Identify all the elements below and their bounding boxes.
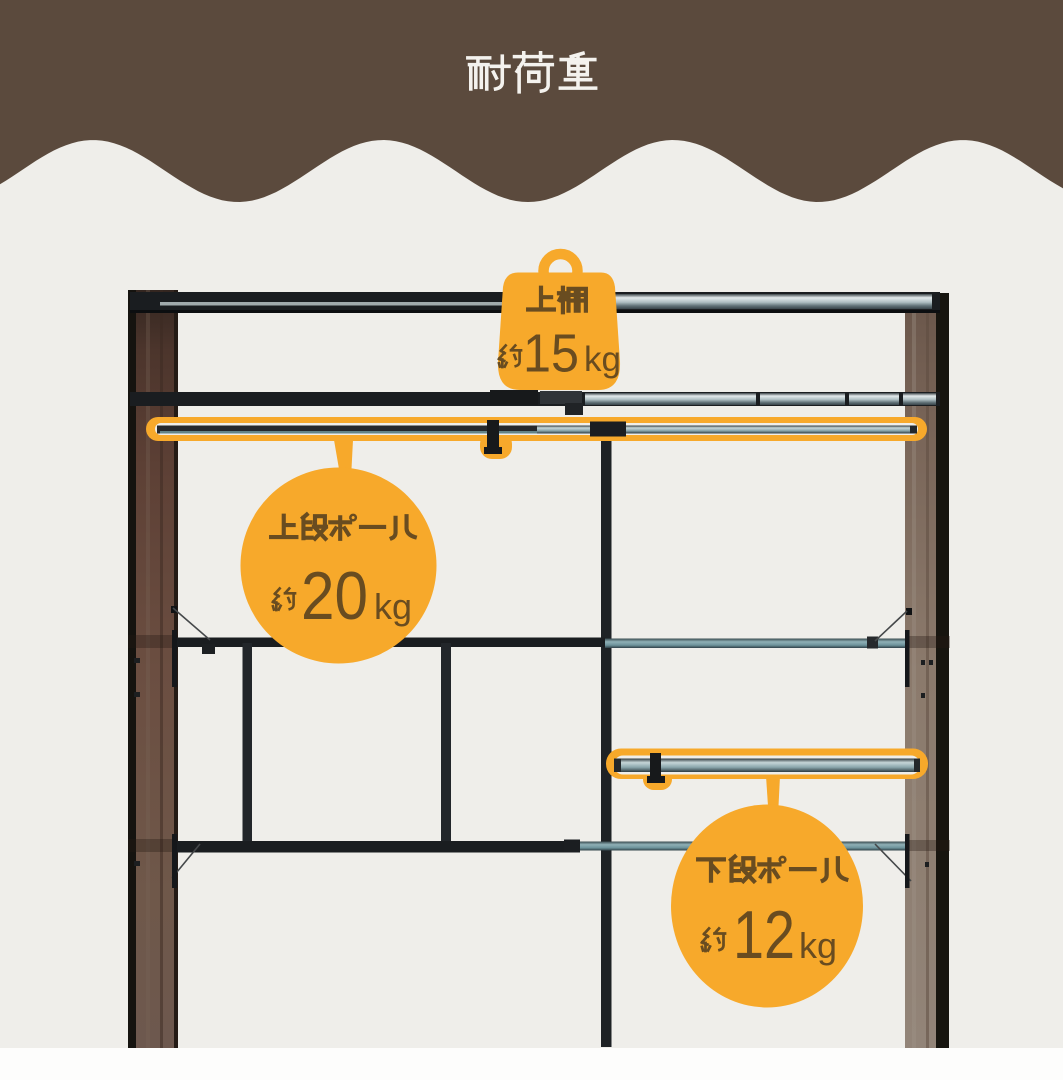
svg-text:20: 20 xyxy=(301,558,368,634)
svg-text:15: 15 xyxy=(523,324,579,384)
svg-text:kg: kg xyxy=(374,586,412,627)
svg-text:12: 12 xyxy=(733,897,795,973)
svg-text:kg: kg xyxy=(584,340,621,379)
svg-text:kg: kg xyxy=(799,925,837,966)
